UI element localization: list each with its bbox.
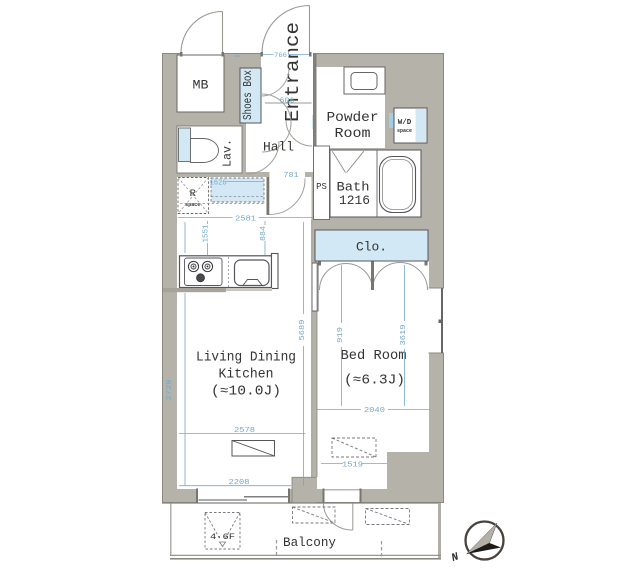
svg-text:Living Dining: Living Dining: [196, 351, 296, 366]
svg-text:884: 884: [260, 225, 268, 241]
svg-text:5689: 5689: [299, 320, 307, 341]
svg-text:1519: 1519: [342, 462, 363, 470]
svg-text:919: 919: [337, 327, 345, 343]
svg-text:Shoes Box: Shoes Box: [242, 70, 255, 120]
svg-text:Room: Room: [335, 126, 371, 142]
svg-text:1216: 1216: [339, 193, 370, 208]
svg-text:3619: 3619: [400, 325, 408, 346]
svg-text:606: 606: [280, 98, 295, 106]
svg-text:R: R: [190, 188, 197, 200]
svg-text:4·6F: 4·6F: [210, 532, 235, 542]
svg-text:space: space: [185, 202, 200, 208]
svg-text:Balcony: Balcony: [283, 536, 336, 550]
svg-text:2578: 2578: [234, 427, 255, 435]
svg-text:1626: 1626: [210, 180, 227, 188]
svg-text:Lav.: Lav.: [221, 139, 235, 167]
svg-text:Powder: Powder: [327, 110, 379, 126]
svg-text:space: space: [397, 128, 412, 134]
svg-text:2581: 2581: [235, 216, 257, 224]
svg-text:(≈6.3J): (≈6.3J): [344, 373, 405, 389]
svg-text:781: 781: [284, 172, 299, 180]
svg-text:MB: MB: [193, 79, 210, 93]
svg-text:2729: 2729: [166, 380, 174, 401]
svg-text:W/D: W/D: [398, 119, 412, 127]
svg-text:Bed Room: Bed Room: [341, 348, 407, 364]
svg-text:1551: 1551: [203, 224, 211, 242]
svg-text:PS: PS: [316, 182, 327, 192]
svg-text:2208: 2208: [229, 479, 250, 487]
svg-text:Clo.: Clo.: [356, 241, 387, 255]
svg-text:Kitchen: Kitchen: [219, 368, 274, 383]
svg-text:766: 766: [274, 52, 287, 59]
svg-text:(≈10.0J): (≈10.0J): [211, 385, 281, 400]
svg-text:Entrance: Entrance: [282, 22, 304, 122]
svg-text:2040: 2040: [364, 407, 386, 415]
